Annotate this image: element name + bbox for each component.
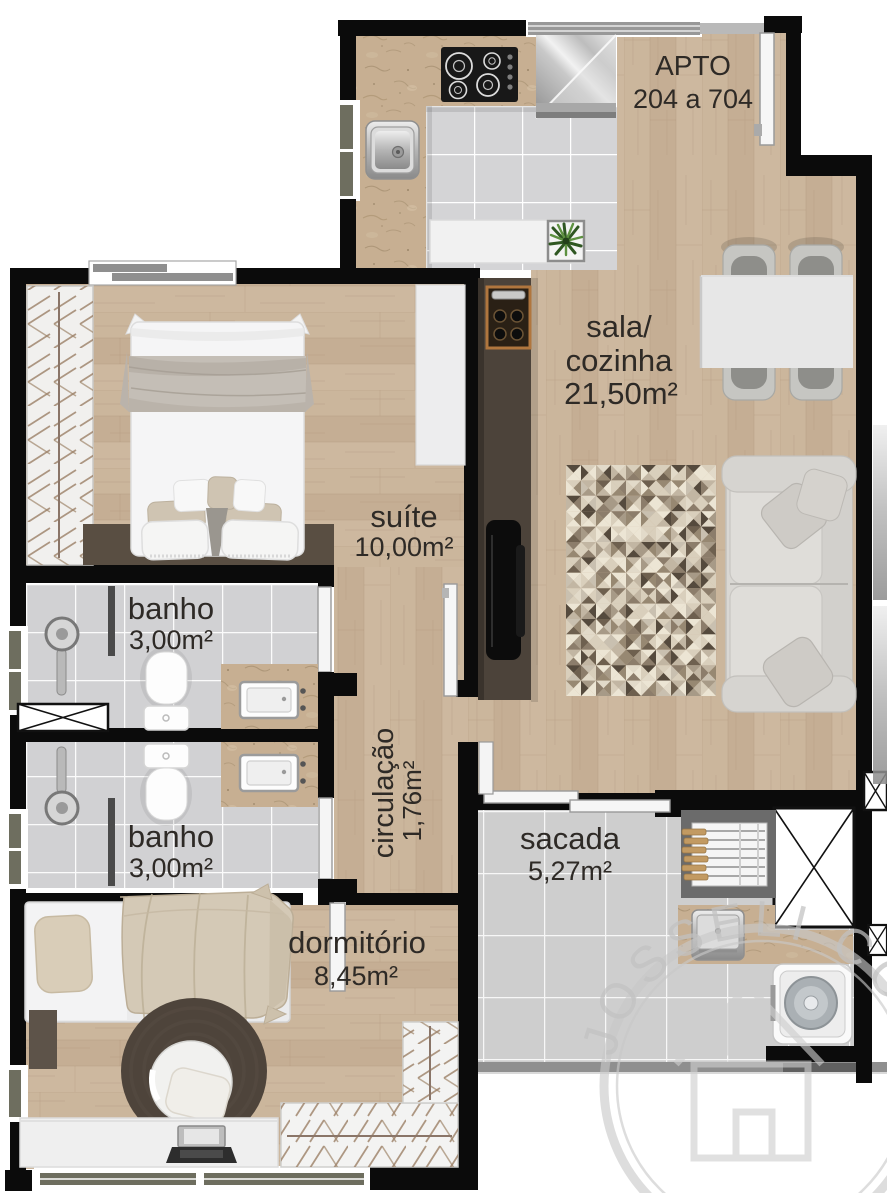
svg-text:10,00m²: 10,00m² [354, 532, 453, 562]
svg-text:circulação: circulação [368, 728, 400, 859]
svg-text:sala/: sala/ [586, 309, 652, 344]
svg-text:8,45m²: 8,45m² [314, 961, 398, 991]
svg-text:cozinha: cozinha [566, 343, 674, 378]
svg-text:sacada: sacada [520, 821, 621, 856]
svg-text:banho: banho [128, 591, 214, 626]
svg-text:1,76m²: 1,76m² [397, 760, 427, 841]
svg-text:204 a 704: 204 a 704 [633, 84, 753, 114]
svg-text:21,50m²: 21,50m² [564, 376, 678, 411]
svg-text:3,00m²: 3,00m² [129, 625, 213, 655]
svg-text:3,00m²: 3,00m² [129, 853, 213, 883]
svg-text:banho: banho [128, 819, 214, 854]
svg-text:APTO: APTO [655, 50, 731, 81]
svg-text:suíte: suíte [370, 499, 437, 534]
svg-text:dormitório: dormitório [288, 925, 426, 960]
svg-text:5,27m²: 5,27m² [528, 856, 612, 886]
